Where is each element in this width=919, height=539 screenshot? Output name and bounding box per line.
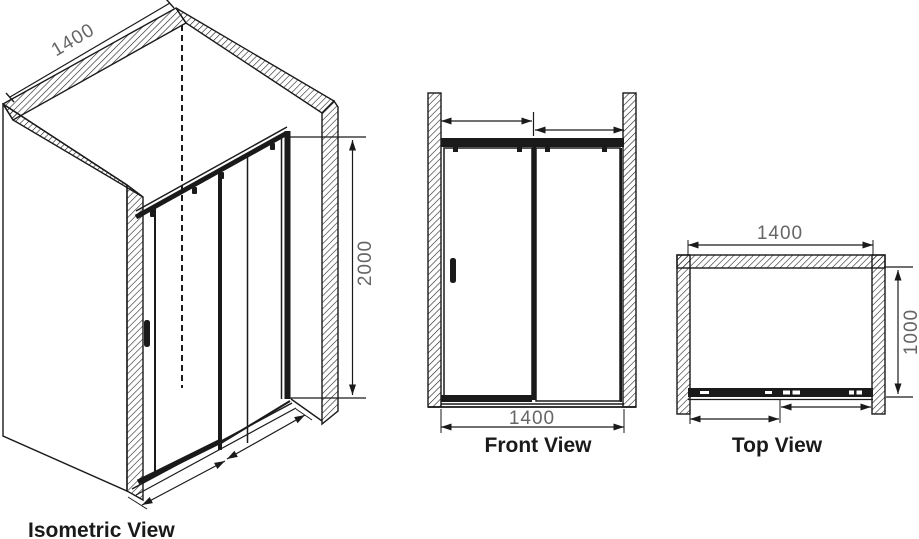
front-sliding-panel [444,148,532,396]
front-left-wall [428,93,441,407]
iso-left-wall-front-band [127,185,143,500]
iso-right-wall-front-band [322,101,338,424]
top-depth-dimension-label: 1000 [901,309,919,355]
top-width-dimension-label: 1400 [757,223,803,244]
front-right-wall [623,93,636,407]
iso-door-handle [144,320,150,347]
iso-top-track-upper-line [136,127,287,211]
iso-back-wall-top-band [3,8,186,120]
technical-drawing-svg: 1400 2000 Isometric View [0,0,919,539]
front-fixed-panel [536,148,620,401]
iso-top-track-bar [136,133,287,217]
iso-width-dimension: 1400 [6,0,174,102]
iso-track-rollers [150,143,275,217]
front-view-drawing: 1400 Front View [428,93,636,457]
iso-bottom-dim-segment-right [227,415,305,459]
iso-bottom-rail-line2 [136,408,296,495]
top-bottom-dim-lines [690,399,871,424]
top-width-dimension: 1400 [688,223,873,256]
iso-right-wall-bottom-edge [291,399,322,421]
iso-right-wall-top-band [176,8,334,113]
top-right-wall [872,255,885,414]
front-top-dim-lines [441,112,624,136]
isometric-view-label: Isometric View [28,519,175,539]
isometric-view-drawing: 1400 2000 Isometric View [3,0,376,539]
iso-left-wall-face [3,104,127,491]
top-door-track-bar [688,388,873,397]
drawing-canvas: 1400 2000 Isometric View [0,0,919,539]
front-door-handle [450,258,456,283]
front-top-track [441,138,624,147]
top-view-label: Top View [732,434,823,457]
front-sliding-panel-bottom-bar [441,395,532,402]
front-view-label: Front View [485,434,593,457]
top-depth-dimension: 1000 [884,267,919,397]
front-width-dimension: 1400 [441,408,624,433]
iso-bottom-dim-ext-left [128,497,147,509]
top-view-drawing: 1400 1000 Top View [677,223,919,457]
top-back-wall [677,255,885,268]
iso-height-dimension-label: 2000 [355,240,376,286]
front-width-dimension-label: 1400 [509,408,555,429]
